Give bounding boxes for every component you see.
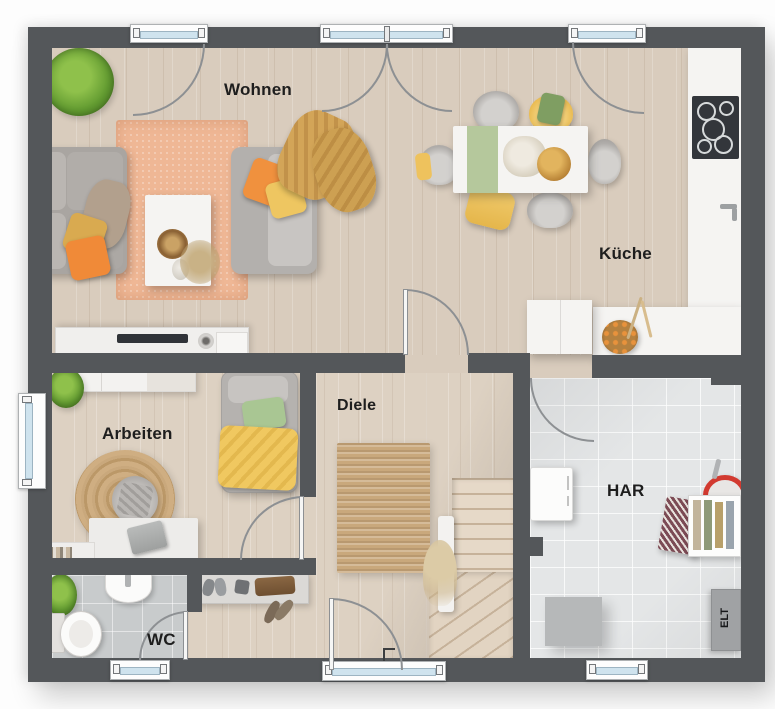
window-top-right: [568, 24, 646, 43]
heater-detail: [567, 496, 569, 506]
tv: [117, 334, 188, 343]
window-glass: [25, 403, 33, 479]
dining-chair: [473, 91, 519, 131]
window-glass: [140, 31, 198, 39]
kitchen-cabinet: [527, 300, 592, 354]
wall-interior: [187, 575, 202, 612]
door-leaf: [329, 598, 334, 670]
window-glass: [120, 667, 160, 675]
room-label-wohnen: Wohnen: [224, 80, 292, 100]
water-heater: [530, 467, 573, 521]
window-glass: [596, 667, 638, 675]
window-wc-bottom: [110, 660, 170, 680]
daybed: [221, 371, 298, 493]
elt-panel-label: ELT: [719, 604, 731, 632]
door-divider: [384, 26, 390, 42]
room-label-har: HAR: [607, 481, 644, 501]
wall-exterior-right: [741, 27, 765, 682]
tool: [726, 501, 734, 549]
room-label-kueche: Küche: [599, 244, 652, 264]
window-glass: [578, 31, 636, 39]
bag: [254, 576, 295, 597]
shoe-shelf: [196, 573, 309, 604]
faucet-lever: [732, 208, 737, 221]
blanket-yellow: [217, 425, 298, 491]
chair-cushion: [116, 481, 154, 519]
pillow-orange: [64, 234, 111, 281]
floor-plan: ELT Wohnen Küche Arbeiten Diele HAR WC: [0, 0, 775, 709]
wall-pier: [711, 372, 741, 385]
dried-plant: [180, 240, 220, 284]
kitchen-counter-right: [688, 47, 741, 310]
wc-sink: [105, 571, 152, 603]
speaker: [198, 333, 214, 349]
door-leaf: [183, 611, 188, 660]
gold-bowl: [537, 147, 571, 181]
potted-plant: [48, 368, 84, 408]
room-label-diele: Diele: [337, 397, 376, 415]
hall-rug: [337, 443, 430, 573]
door-leaf: [403, 289, 408, 355]
room-label-wc: WC: [147, 630, 176, 650]
decor-item: [234, 579, 250, 595]
heater-detail: [567, 476, 569, 490]
cooktop: [692, 96, 739, 159]
throw-yellow: [415, 152, 433, 180]
book-stack: [64, 335, 114, 351]
window-har-bottom: [586, 660, 648, 680]
toilet-seat: [69, 620, 93, 648]
room-label-arbeiten: Arbeiten: [102, 424, 173, 444]
wall-interior: [300, 373, 316, 497]
tool: [715, 502, 723, 548]
dining-chair: [527, 192, 573, 228]
burner-icon: [714, 135, 733, 154]
wall-interior: [513, 373, 530, 658]
dining-chair: [588, 139, 621, 184]
burner-icon: [719, 101, 734, 116]
tool-shelf: [688, 495, 741, 557]
cabinet-seam: [560, 300, 561, 354]
utility-box: [545, 597, 602, 646]
window-top-left: [130, 24, 208, 43]
table-runner: [467, 126, 498, 193]
tool: [704, 500, 712, 550]
laptop: [126, 520, 167, 555]
burner-icon: [697, 139, 712, 154]
terrace-double-door: [320, 24, 453, 43]
potted-plant: [44, 48, 114, 116]
decor-box: [216, 332, 248, 355]
dining-table: [453, 126, 588, 193]
wall-interior: [52, 558, 316, 575]
shoe: [214, 577, 228, 597]
dried-plant: [423, 540, 457, 606]
door-leaf: [299, 496, 304, 560]
faucet-icon: [125, 574, 131, 587]
wall-interior: [52, 353, 405, 373]
tool: [693, 500, 701, 550]
window-office-left: [18, 393, 46, 489]
toilet-bowl: [60, 611, 102, 657]
wall-interior: [468, 353, 530, 373]
wall-pier: [522, 537, 543, 556]
wall-exterior-left: [28, 27, 52, 682]
